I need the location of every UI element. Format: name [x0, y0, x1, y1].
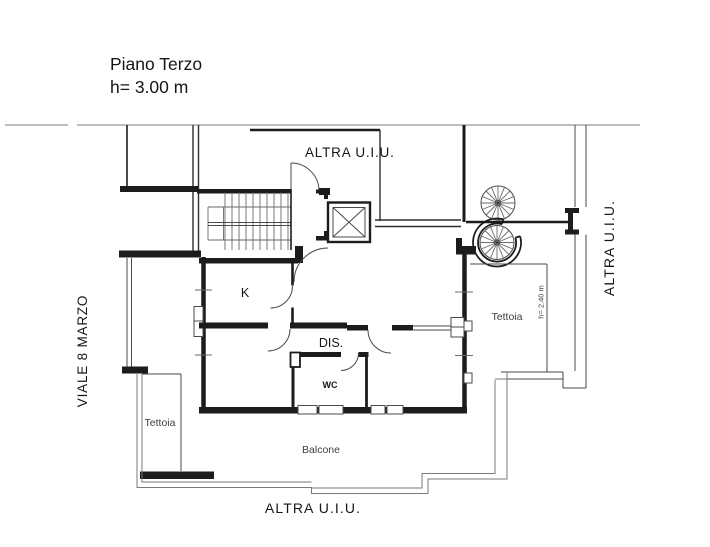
corridor-walls: [375, 220, 570, 227]
elevator-shaft: [316, 190, 370, 243]
floor-plan-canvas: Piano Terzo h= 3.00 m ALTRA U.I.U. ALTRA…: [0, 0, 710, 547]
label-canopy-height: h= 2.40 m: [537, 285, 546, 319]
label-street: VIALE 8 MARZO: [75, 295, 90, 407]
floor-plan-page: Piano Terzo h= 3.00 m ALTRA U.I.U. ALTRA…: [0, 0, 710, 547]
label-canopy-right: Tettoia: [492, 311, 523, 323]
label-other-unit-bottom: ALTRA U.I.U.: [265, 500, 361, 516]
stairwell: [197, 163, 330, 250]
upper-left-room: [120, 125, 199, 253]
label-balcony: Balcone: [302, 444, 340, 456]
left-balcony-wall: [122, 258, 148, 374]
plan-height-note: h= 3.00 m: [110, 77, 188, 97]
plan-title: Piano Terzo: [110, 54, 202, 74]
label-other-unit-top: ALTRA U.I.U.: [305, 145, 395, 160]
label-canopy-left: Tettoia: [145, 417, 176, 429]
label-kitchen: K: [241, 286, 250, 300]
text-labels: Piano Terzo h= 3.00 m ALTRA U.I.U. ALTRA…: [75, 54, 617, 516]
label-hall: DIS.: [319, 336, 343, 350]
right-canopy: [470, 264, 586, 388]
label-other-unit-right: ALTRA U.I.U.: [601, 200, 617, 296]
right-party-wall: [565, 125, 586, 388]
label-wc: WC: [323, 380, 338, 390]
spiral-staircase-upper: [481, 186, 515, 220]
entry-hall: [119, 246, 328, 282]
